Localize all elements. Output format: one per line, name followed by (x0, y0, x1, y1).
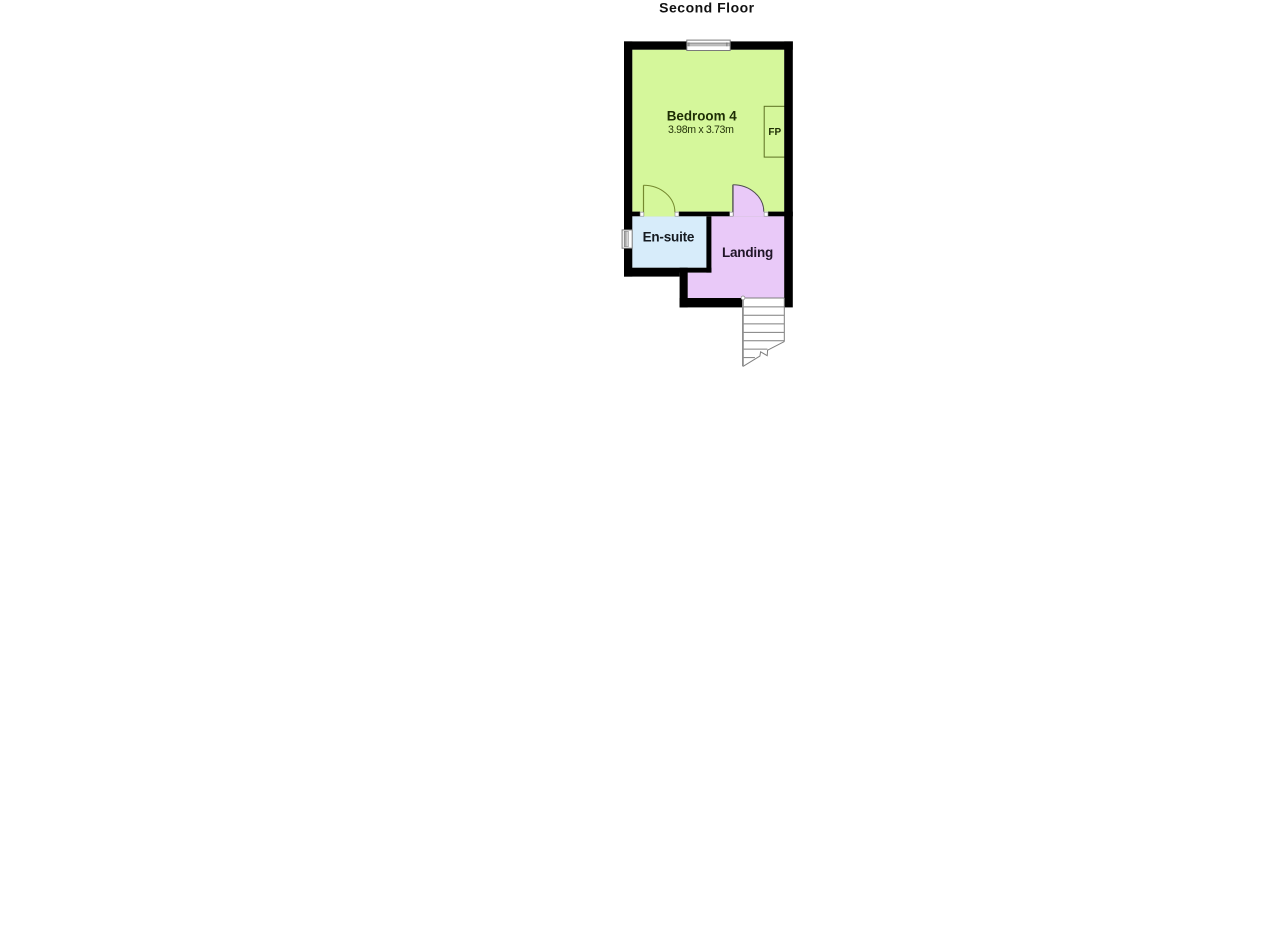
svg-text:Bedroom 4: Bedroom 4 (667, 109, 737, 124)
svg-text:Second Floor: Second Floor (659, 0, 755, 15)
svg-text:Landing: Landing (722, 245, 773, 260)
svg-text:En-suite: En-suite (643, 230, 695, 245)
svg-text:3.98m x 3.73m: 3.98m x 3.73m (668, 124, 734, 136)
svg-text:FP: FP (768, 127, 781, 138)
